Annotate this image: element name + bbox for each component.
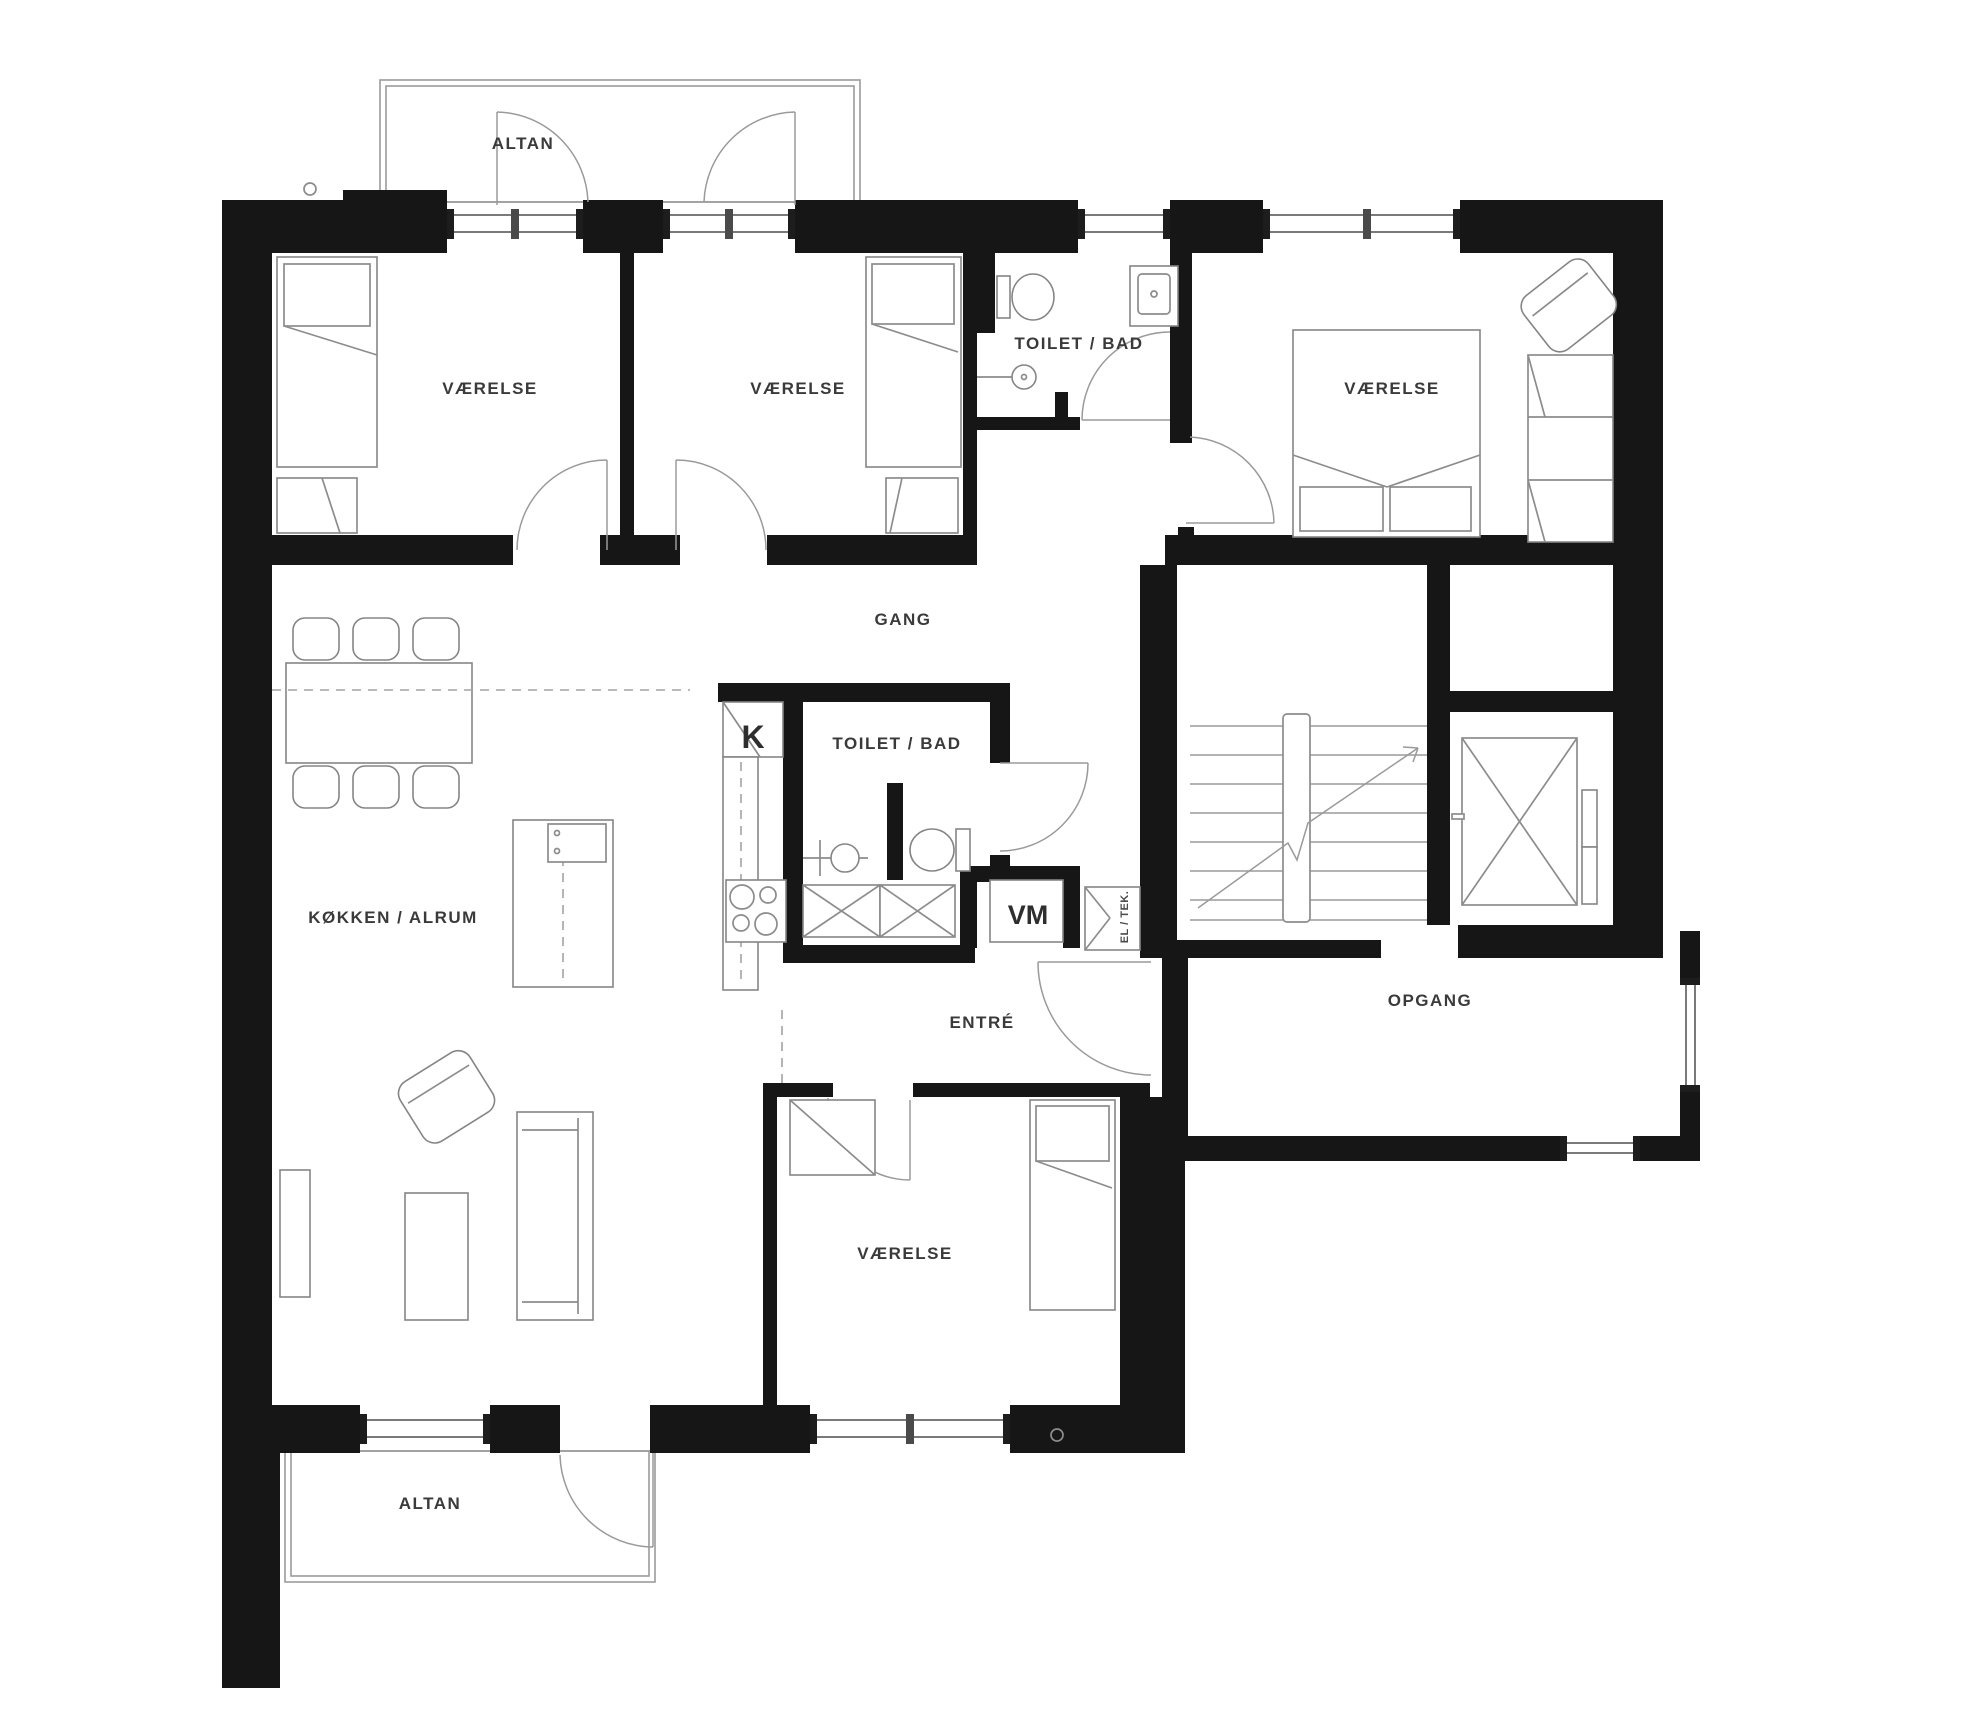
sofa — [517, 1112, 593, 1320]
wardrobe — [1528, 355, 1613, 542]
bedroom-4-furniture — [790, 1100, 1115, 1310]
pillow — [284, 264, 370, 326]
el-tech-closet — [1085, 887, 1140, 950]
label-balcony-bottom: ALTAN — [399, 1494, 462, 1513]
label-bedroom-2: VÆRELSE — [750, 379, 846, 398]
balcony-top-outline — [380, 80, 860, 202]
chair — [413, 766, 459, 808]
bathroom-top-fixtures — [977, 266, 1178, 389]
coffee-table — [405, 1193, 468, 1320]
label-washing-machine: VM — [1008, 900, 1049, 930]
label-bathroom-top: TOILET / BAD — [1014, 334, 1143, 353]
sideboard — [280, 1170, 310, 1297]
label-balcony-top: ALTAN — [492, 134, 555, 153]
label-bedroom-4: VÆRELSE — [857, 1244, 953, 1263]
label-kitchen-living: KØKKEN / ALRUM — [308, 908, 478, 927]
balcony-bottom-outline — [285, 1451, 655, 1582]
label-el-tech: EL / TEK. — [1119, 891, 1131, 944]
label-bedroom-3: VÆRELSE — [1344, 379, 1440, 398]
toilet-bowl — [1012, 274, 1054, 320]
chair — [293, 618, 339, 660]
armchair — [1516, 253, 1622, 357]
bed-foot-box — [1390, 487, 1471, 531]
sink-basin-round — [831, 844, 859, 872]
bedroom-2-furniture — [866, 257, 961, 533]
elevator-door-panel — [1582, 790, 1597, 847]
chair — [353, 618, 399, 660]
staircase — [1190, 714, 1427, 922]
bedroom-3-furniture — [1293, 253, 1622, 542]
living-room-furniture — [280, 1045, 593, 1320]
stair-stringer — [1283, 714, 1310, 922]
toilet-tank — [956, 829, 970, 871]
pillow — [1036, 1106, 1109, 1161]
chair — [353, 766, 399, 808]
pillow — [872, 264, 954, 324]
label-fridge: K — [741, 719, 764, 755]
toilet-tank — [997, 276, 1010, 318]
kitchen-island — [513, 820, 613, 987]
armchair — [393, 1045, 500, 1148]
label-bathroom-mid: TOILET / BAD — [832, 734, 961, 753]
dining-set — [286, 618, 472, 808]
cooktop — [726, 880, 786, 942]
label-opgang: OPGANG — [1388, 991, 1473, 1010]
chair — [293, 766, 339, 808]
label-hallway: GANG — [875, 610, 932, 629]
desk — [277, 478, 357, 533]
elevator-door-panel — [1582, 847, 1597, 904]
elevator — [1452, 738, 1597, 905]
elevator-call-mark — [1452, 814, 1464, 819]
floor-plan-page: ALTAN VÆRELSE VÆRELSE TOILET / BAD VÆREL… — [0, 0, 1984, 1733]
label-entry: ENTRÉ — [949, 1013, 1014, 1032]
label-bedroom-1: VÆRELSE — [442, 379, 538, 398]
shower-head-icon — [1012, 365, 1036, 389]
chair — [413, 618, 459, 660]
bathroom-mid-fixtures — [803, 829, 970, 937]
bed-foot-box — [1300, 487, 1383, 531]
toilet-bowl — [910, 829, 954, 871]
dining-table — [286, 663, 472, 763]
bedroom-1-furniture — [277, 257, 377, 533]
floor-plan-drawing: ALTAN VÆRELSE VÆRELSE TOILET / BAD VÆREL… — [0, 0, 1984, 1733]
